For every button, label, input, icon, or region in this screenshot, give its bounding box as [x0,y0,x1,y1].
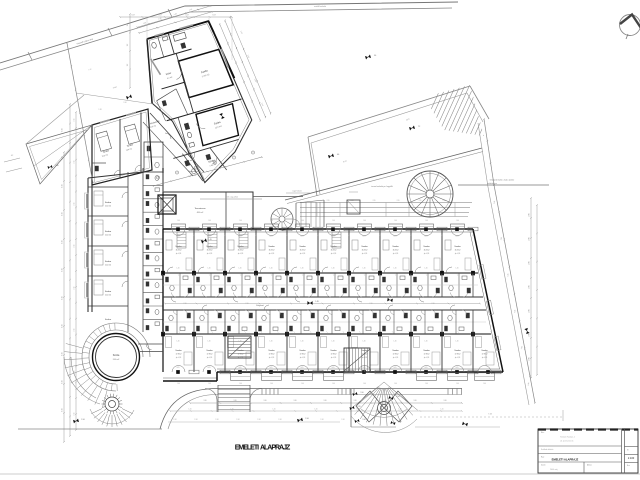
svg-text:1.40: 1.40 [301,383,304,385]
svg-text:pk +3,15: pk +3,15 [455,253,461,255]
svg-text:4.05: 4.05 [456,367,459,369]
svg-text:3.10: 3.10 [323,400,326,402]
svg-text:pk +3,15: pk +3,15 [393,357,399,359]
svg-text:2.80: 2.80 [529,213,531,216]
svg-text:Szoba: Szoba [105,291,112,293]
svg-text:1.45: 1.45 [398,421,401,423]
svg-text:1.40: 1.40 [239,220,242,222]
svg-text:Szoba: Szoba [105,202,112,204]
svg-text:Rajz:: Rajz: [541,457,545,459]
svg-text:Szoba: Szoba [454,246,461,248]
svg-text:1.58: 1.58 [237,419,240,421]
svg-text:1.50: 1.50 [62,324,64,327]
svg-text:3.10: 3.10 [293,400,296,402]
svg-text:1.40: 1.40 [425,268,428,270]
svg-text:17.8 m2: 17.8 m2 [176,354,182,356]
svg-text:1.50: 1.50 [81,419,84,421]
svg-text:1.18: 1.18 [98,109,101,111]
svg-text:4.23: 4.23 [425,236,428,238]
svg-text:terasz burkolat pe. fagyálló: terasz burkolat pe. fagyálló [371,185,392,188]
svg-text:2.26: 2.26 [373,200,376,202]
svg-text:7.2: 7.2 [418,126,420,128]
svg-text:4.23: 4.23 [332,236,335,238]
svg-text:1.40: 1.40 [239,341,242,343]
svg-text:1.58: 1.58 [258,419,261,421]
svg-text:Szoba: Szoba [105,319,112,321]
svg-text:1.50: 1.50 [62,184,64,187]
svg-text:1.40: 1.40 [425,341,428,343]
svg-text:4.23: 4.23 [456,236,459,238]
svg-text:1.40: 1.40 [456,220,459,222]
svg-text:1.40: 1.40 [483,383,486,385]
svg-text:1.40: 1.40 [456,341,459,343]
svg-text:1.20: 1.20 [189,409,192,411]
svg-text:2.15: 2.15 [74,244,76,247]
svg-text:1.40: 1.40 [425,220,428,222]
svg-text:pk +3,15: pk +3,15 [482,357,488,359]
svg-text:5.6: 5.6 [374,55,376,57]
svg-text:1.58: 1.58 [321,419,324,421]
svg-text:1.2: 1.2 [127,24,129,26]
svg-text:pk +3,15: pk +3,15 [455,357,461,359]
svg-text:1.40: 1.40 [332,341,335,343]
svg-text:2.10: 2.10 [184,303,187,305]
svg-text:2.15: 2.15 [74,160,76,163]
svg-text:3.10: 3.10 [353,400,356,402]
svg-text:pk +3,15: pk +3,15 [207,253,213,255]
svg-text:2.10: 2.10 [246,303,249,305]
svg-text:48.6 m2: 48.6 m2 [197,212,204,214]
svg-text:1.40: 1.40 [301,268,304,270]
svg-text:4.05: 4.05 [301,367,304,369]
svg-text:1.50: 1.50 [360,392,363,394]
svg-text:1.55: 1.55 [357,406,360,408]
svg-text:Szoba: Szoba [423,350,430,352]
svg-text:2.15: 2.15 [74,412,76,415]
svg-text:16.3 m2: 16.3 m2 [176,250,182,252]
svg-text:16.3 m2: 16.3 m2 [300,250,306,252]
svg-text:1.40: 1.40 [208,383,211,385]
svg-text:1.58: 1.58 [174,419,177,421]
svg-text:1.40: 1.40 [301,341,304,343]
svg-text:16.3 m2: 16.3 m2 [238,250,244,252]
svg-text:5.67: 5.67 [131,15,134,17]
svg-text:Szálloda bővítés: Szálloda bővítés [541,448,554,451]
svg-text:Szoba: Szoba [268,350,275,352]
svg-text:1.40: 1.40 [239,383,242,385]
svg-text:2.15: 2.15 [74,118,76,121]
svg-text:pk +3,15: pk +3,15 [362,253,368,255]
svg-text:4.05: 4.05 [332,367,335,369]
svg-text:Szoba: Szoba [175,350,182,352]
svg-text:2.80: 2.80 [529,333,531,336]
svg-text:1.40: 1.40 [425,383,428,385]
svg-text:1.50: 1.50 [62,240,64,243]
svg-text:Szoba: Szoba [392,350,399,352]
svg-text:17.8 m2: 17.8 m2 [238,354,244,356]
svg-text:1.45: 1.45 [315,301,318,303]
svg-text:1.40: 1.40 [394,220,397,222]
svg-text:16.3 m2: 16.3 m2 [424,250,430,252]
svg-text:5.67: 5.67 [158,15,161,17]
svg-text:17.8 m2: 17.8 m2 [455,354,461,356]
svg-text:5.67: 5.67 [185,15,188,17]
svg-text:4.05: 4.05 [239,367,242,369]
svg-text:4.23: 4.23 [301,236,304,238]
svg-text:16.3 m2: 16.3 m2 [269,250,275,252]
svg-text:Szoba: Szoba [392,246,399,248]
svg-text:2.80: 2.80 [529,261,531,264]
svg-text:1.40: 1.40 [456,268,459,270]
svg-text:Szoba: Szoba [268,246,275,248]
svg-text:2.26: 2.26 [327,200,330,202]
svg-text:pk +3,15: pk +3,15 [176,357,182,359]
svg-text:2.80: 2.80 [529,309,531,312]
svg-text:1.40: 1.40 [270,220,273,222]
svg-text:Tetőterasz: Tetőterasz [188,170,198,173]
svg-text:4.23: 4.23 [239,236,242,238]
svg-text:1.40: 1.40 [332,268,335,270]
svg-text:1.40: 1.40 [270,383,273,385]
svg-text:Szoba: Szoba [113,355,120,357]
svg-text:1.40: 1.40 [394,268,397,270]
svg-text:4.23: 4.23 [270,236,273,238]
svg-text:EMELETI ALAPRAJZ: EMELETI ALAPRAJZ [552,457,579,461]
svg-text:1.50: 1.50 [305,418,308,420]
svg-text:1.40: 1.40 [363,383,366,385]
svg-text:3.10: 3.10 [413,400,416,402]
svg-text:1.50: 1.50 [62,408,64,411]
svg-text:4.23: 4.23 [208,236,211,238]
svg-text:Név:: Név: [541,432,545,434]
svg-text:1.40: 1.40 [363,220,366,222]
svg-text:1.20: 1.20 [441,409,444,411]
svg-text:2.15: 2.15 [74,286,76,289]
svg-text:1.50: 1.50 [62,296,64,299]
svg-text:17.8 m2: 17.8 m2 [331,354,337,356]
svg-text:2.15: 2.15 [74,328,76,331]
svg-text:2.15: 2.15 [74,202,76,205]
svg-text:1.2: 1.2 [127,44,129,46]
svg-text:7.34: 7.34 [488,414,492,416]
svg-text:1.40: 1.40 [394,341,397,343]
svg-text:1.50: 1.50 [62,212,64,215]
svg-text:Szoba: Szoba [481,350,488,352]
svg-text:1.40: 1.40 [456,383,459,385]
svg-text:4.23: 4.23 [177,236,180,238]
svg-text:1:100: 1:100 [628,456,635,460]
svg-text:1.40: 1.40 [363,341,366,343]
svg-text:1.50: 1.50 [62,352,64,355]
svg-text:2.80: 2.80 [529,237,531,240]
svg-text:Tornaterem: Tornaterem [194,207,205,210]
svg-text:11.2 m2: 11.2 m2 [105,206,111,208]
svg-text:pk +3,15: pk +3,15 [269,253,275,255]
svg-text:pk +3,15: pk +3,15 [331,253,337,255]
svg-text:pk +3,15: pk +3,15 [393,253,399,255]
svg-text:1.58: 1.58 [195,419,198,421]
svg-text:16.3 m2: 16.3 m2 [455,250,461,252]
svg-text:3.10: 3.10 [233,400,236,402]
svg-text:1.40: 1.40 [208,220,211,222]
svg-text:3.10: 3.10 [203,400,206,402]
svg-text:1.20: 1.20 [231,409,234,411]
svg-text:1.40: 1.40 [208,341,211,343]
svg-text:1.86: 1.86 [55,165,58,167]
svg-text:1.40: 1.40 [270,341,273,343]
svg-text:1.50: 1.50 [62,268,64,271]
svg-text:felújítandó tűzfal a határ. ép: felújítandó tűzfal a határ. épülete [490,179,514,182]
svg-text:3.10: 3.10 [263,400,266,402]
svg-text:1.40: 1.40 [301,220,304,222]
svg-text:1.40: 1.40 [177,383,180,385]
svg-text:16.3 m2: 16.3 m2 [393,250,399,252]
svg-text:4.05: 4.05 [425,367,428,369]
svg-text:17.8 m2: 17.8 m2 [393,354,399,356]
svg-text:4.05: 4.05 [208,367,211,369]
svg-text:24.6 m2: 24.6 m2 [113,359,120,361]
svg-text:1.50: 1.50 [362,419,365,421]
svg-text:1.40: 1.40 [177,341,180,343]
svg-text:1.40: 1.40 [208,268,211,270]
svg-text:1.20: 1.20 [315,409,318,411]
svg-text:17.8 m2: 17.8 m2 [300,354,306,356]
svg-text:11.2 m2: 11.2 m2 [105,235,111,237]
svg-text:Szoba: Szoba [454,350,461,352]
svg-text:Folyosó: Folyosó [256,305,264,307]
svg-text:Szoba: Szoba [299,350,306,352]
svg-text:1.50: 1.50 [62,380,64,383]
svg-text:1.58: 1.58 [216,419,219,421]
svg-text:2.10: 2.10 [432,303,435,305]
svg-text:4.23: 4.23 [394,236,397,238]
svg-text:EMELETI ALAPRAJZ: EMELETI ALAPRAJZ [235,445,291,452]
svg-text:17.8 m2: 17.8 m2 [482,354,488,356]
svg-text:1.90: 1.90 [123,102,126,104]
svg-text:4.05: 4.05 [363,367,366,369]
svg-text:2.26: 2.26 [419,200,422,202]
svg-text:1.50: 1.50 [62,128,64,131]
svg-text:1.40: 1.40 [270,268,273,270]
svg-text:pk +3,15: pk +3,15 [424,357,430,359]
svg-text:4.05: 4.05 [270,367,273,369]
svg-text:Szoba: Szoba [423,246,430,248]
svg-text:aszfalt burkolat: aszfalt burkolat [314,5,327,8]
svg-text:2.80: 2.80 [529,285,531,288]
svg-text:pk +3,15: pk +3,15 [269,357,275,359]
svg-text:mellettépítve: mellettépítve [487,182,497,185]
svg-text:1.58: 1.58 [342,419,345,421]
svg-text:2004. máj.: 2004. máj. [550,469,558,471]
svg-text:pk +3,15: pk +3,15 [424,253,430,255]
svg-text:1.40: 1.40 [363,268,366,270]
svg-text:1.40: 1.40 [177,220,180,222]
svg-text:17.8 m2: 17.8 m2 [424,354,430,356]
svg-text:1.40: 1.40 [332,383,335,385]
svg-text:pk +3,15: pk +3,15 [238,253,244,255]
svg-text:pk +3,15: pk +3,15 [300,253,306,255]
svg-text:1.50: 1.50 [62,156,64,159]
svg-text:Szoba: Szoba [330,350,337,352]
svg-text:1.2: 1.2 [127,64,129,66]
svg-text:pk +3,15: pk +3,15 [300,357,306,359]
svg-text:Szoba: Szoba [105,261,112,263]
svg-text:1.40: 1.40 [239,268,242,270]
svg-text:1.40: 1.40 [177,268,180,270]
svg-text:16.3 m2: 16.3 m2 [362,250,368,252]
svg-text:2.80: 2.80 [529,357,531,360]
svg-text:17.8 m2: 17.8 m2 [269,354,275,356]
svg-text:szgk. felvonó: szgk. felvonó [292,191,301,193]
svg-text:pk +3,15: pk +3,15 [207,357,213,359]
svg-text:1.50: 1.50 [396,396,399,398]
svg-text:1.45: 1.45 [208,239,211,241]
svg-text:pk +3,15: pk +3,15 [176,253,182,255]
svg-text:3.10: 3.10 [443,400,446,402]
svg-text:11.2 m2: 11.2 m2 [105,265,111,267]
svg-text:Szoba: Szoba [105,231,112,233]
svg-text:62.4 m2: 62.4 m2 [190,175,197,177]
svg-text:1.40: 1.40 [394,383,397,385]
svg-text:4.05: 4.05 [394,367,397,369]
svg-text:Tervező: Kovács J.: Tervező: Kovács J. [560,437,576,439]
svg-text:4.2: 4.2 [11,155,13,157]
svg-text:2.26: 2.26 [397,200,400,202]
svg-text:Szoba: Szoba [206,350,213,352]
svg-text:Szoba: Szoba [361,246,368,248]
svg-text:4.05: 4.05 [177,367,180,369]
svg-text:pk +3,15: pk +3,15 [331,357,337,359]
svg-text:2.10: 2.10 [370,303,373,305]
svg-text:4.23: 4.23 [363,236,366,238]
svg-text:11.2 m2: 11.2 m2 [105,295,111,297]
svg-text:Szoba: Szoba [299,246,306,248]
svg-text:1.40: 1.40 [332,220,335,222]
svg-text:4.6: 4.6 [337,154,339,156]
svg-text:17.8 m2: 17.8 m2 [207,354,213,356]
svg-text:16.3 m2: 16.3 m2 [207,250,213,252]
svg-text:1.58: 1.58 [279,419,282,421]
svg-text:5.67: 5.67 [212,15,215,17]
svg-text:1.20: 1.20 [273,409,276,411]
svg-text:16.3 m2: 16.3 m2 [331,250,337,252]
